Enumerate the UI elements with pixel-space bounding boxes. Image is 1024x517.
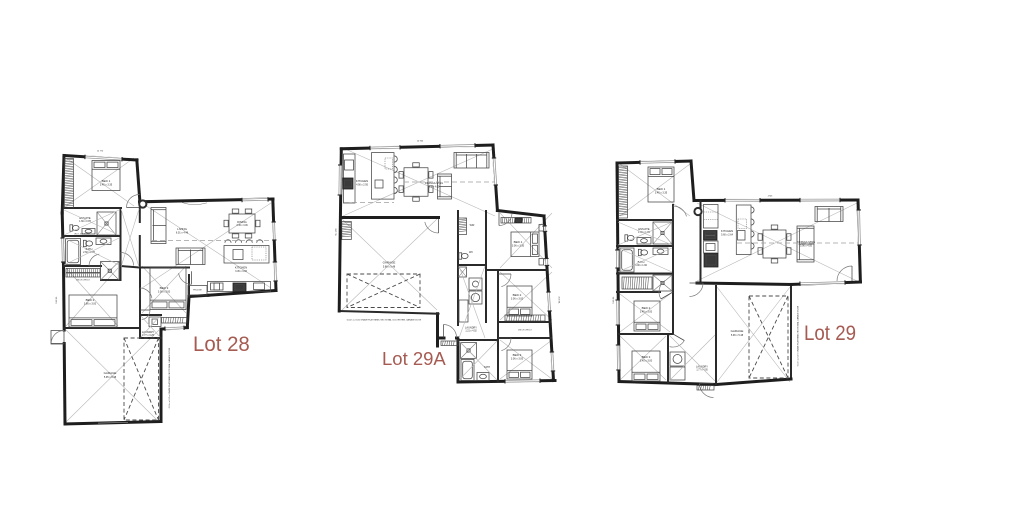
svg-text:3.45 x 3.06: 3.45 x 3.06: [236, 225, 248, 227]
svg-text:3.06 x 3.00: 3.06 x 3.00: [511, 298, 524, 301]
svg-text:W.D 1.10 2.10 W.D: W.D 1.10 2.10 W.D: [74, 234, 90, 236]
svg-text:BED 3: BED 3: [513, 353, 522, 357]
svg-text:GARAGE: GARAGE: [104, 371, 117, 375]
svg-text:KITCHEN: KITCHEN: [721, 229, 733, 233]
svg-text:5.5 x 4.05: 5.5 x 4.05: [429, 185, 440, 188]
svg-text:WIR: WIR: [470, 224, 475, 227]
svg-text:BED 1: BED 1: [657, 187, 666, 191]
svg-text:KITCHEN: KITCHEN: [356, 179, 368, 183]
svg-text:4Rl 0.9 0.9Rl 1.8: 4Rl 0.9 0.9Rl 1.8: [518, 329, 531, 331]
svg-text:BED 2: BED 2: [513, 293, 522, 297]
svg-text:6.10m x 2.10m GRADE FLAT PANEL: 6.10m x 2.10m GRADE FLAT PANEL SECTIONAL…: [168, 347, 171, 408]
svg-text:5.96 x 5.48: 5.96 x 5.48: [731, 334, 744, 337]
svg-text:3.06 x 3.00: 3.06 x 3.00: [158, 291, 171, 294]
svg-text:DINING: DINING: [237, 220, 246, 224]
svg-text:LIVING: LIVING: [177, 227, 188, 231]
svg-text:5.60 x 2.64: 5.60 x 2.64: [721, 233, 733, 236]
svg-text:1980 SIL: 1980 SIL: [56, 296, 58, 303]
svg-text:1.21 x 4.02: 1.21 x 4.02: [465, 331, 477, 333]
svg-text:14 900: 14 900: [417, 141, 424, 143]
svg-text:6.01 x 4.46: 6.01 x 4.46: [176, 232, 189, 235]
svg-text:SIL 1200: SIL 1200: [336, 228, 338, 235]
svg-text:4Rl 0.9 0.9Rl: 4Rl 0.9 0.9Rl: [632, 292, 643, 294]
svg-text:3.45 x 3.00: 3.45 x 3.00: [640, 360, 653, 363]
svg-text:1980 SIL: 1980 SIL: [613, 296, 615, 303]
svg-text:3.00 x 1.90: 3.00 x 1.90: [635, 264, 647, 267]
svg-text:BED 2: BED 2: [642, 306, 651, 310]
svg-text:DINING/LIVING: DINING/LIVING: [425, 181, 443, 185]
svg-text:1.77 x 4.05: 1.77 x 4.05: [696, 370, 708, 372]
svg-text:BED 2: BED 2: [86, 298, 95, 302]
svg-text:4.90 x 2.95: 4.90 x 2.95: [356, 183, 368, 186]
svg-text:2743: 2743: [768, 196, 773, 198]
svg-text:BED 1: BED 1: [514, 240, 523, 244]
svg-text:FRI-DGE: FRI-DGE: [193, 290, 202, 292]
svg-text:3.45 x 3.35: 3.45 x 3.35: [100, 184, 113, 187]
svg-text:BED 1: BED 1: [102, 179, 111, 183]
svg-text:12 770: 12 770: [97, 151, 104, 153]
svg-text:BED 3: BED 3: [160, 286, 169, 290]
svg-text:4Rl 0.9 0.9Rl 1.8: 4Rl 0.9 0.9Rl 1.8: [76, 279, 89, 281]
svg-text:5.95 x 5.48: 5.95 x 5.48: [104, 376, 117, 379]
svg-text:GARAGE: GARAGE: [383, 261, 396, 265]
svg-text:6.10m x 2.10m GRADE FLAT PANEL: 6.10m x 2.10m GRADE FLAT PANEL SECTIONAL…: [797, 305, 800, 366]
svg-text:3.45 x 3.06: 3.45 x 3.06: [235, 270, 247, 273]
svg-text:2100 SIL: 2100 SIL: [558, 296, 560, 303]
svg-text:6.10m x 2.10m GRADE FLAT PANEL: 6.10m x 2.10m GRADE FLAT PANEL SECTIONAL…: [347, 319, 422, 322]
svg-text:1.77 x 3.25: 1.77 x 3.25: [142, 334, 154, 337]
svg-text:DINING/LIVING: DINING/LIVING: [797, 240, 815, 244]
svg-text:3.06 x 3.00: 3.06 x 3.00: [511, 358, 524, 361]
svg-text:5.86 x 5.48: 5.86 x 5.48: [383, 265, 396, 268]
svg-text:BED 3: BED 3: [642, 355, 651, 359]
svg-text:3.45 x 3.35: 3.45 x 3.35: [655, 192, 668, 195]
svg-text:3.45 x 3.00: 3.45 x 3.00: [640, 311, 653, 314]
svg-text:3.06 x 3.30: 3.06 x 3.30: [512, 245, 525, 248]
svg-text:LAUNDRY: LAUNDRY: [465, 327, 477, 330]
svg-text:GARAGE: GARAGE: [731, 329, 744, 333]
svg-text:5.96 x 4.05: 5.96 x 4.05: [800, 244, 812, 247]
svg-text:3.66 x 3.00: 3.66 x 3.00: [84, 303, 97, 306]
svg-text:WC: WC: [469, 251, 473, 254]
